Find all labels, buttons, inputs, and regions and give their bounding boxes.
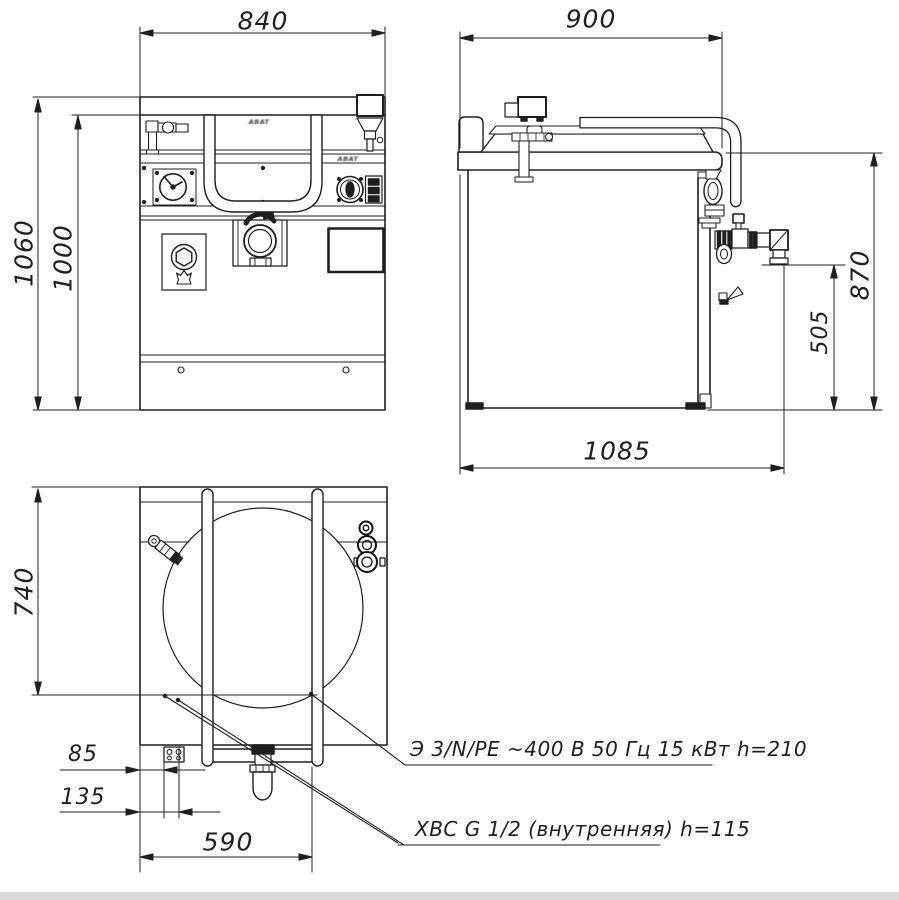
dim-label-740: 740 <box>12 567 37 618</box>
front-safety-valve <box>357 95 383 151</box>
dim-label-505: 505 <box>810 310 832 355</box>
side-left-tab <box>459 117 483 152</box>
dim-label-900: 900 <box>566 7 617 32</box>
front-indicator-lights <box>366 176 383 203</box>
front-electrical-box <box>329 229 384 273</box>
dim-label-590: 590 <box>203 830 254 855</box>
top-drain-valve <box>250 745 275 800</box>
technical-drawing-canvas: 840 900 1060 1000 870 505 1085 740 85 13… <box>0 0 899 900</box>
front-view-drawing <box>140 95 385 410</box>
top-handle-bar-left <box>202 489 213 766</box>
front-water-tap <box>146 121 188 154</box>
note-electrical-connection: Э 3/N/PE ~400 В 50 Гц 15 кВт h=210 <box>410 738 807 760</box>
dim-label-1085: 1085 <box>583 439 651 464</box>
front-service-panel <box>162 234 206 290</box>
brand-logo-lid: ABAT <box>249 118 270 125</box>
side-foot-right <box>686 403 705 409</box>
drawing-geometry <box>0 0 899 900</box>
dim-label-870: 870 <box>848 250 873 301</box>
side-drain-cap <box>704 178 722 205</box>
front-foot-screw-right <box>343 367 349 373</box>
brand-logo-rim: ABAT <box>338 155 359 162</box>
page-edge-strip <box>0 892 899 900</box>
dim-label-1060: 1060 <box>12 219 37 287</box>
top-handle-bar-right <box>312 489 323 766</box>
dim-label-1000: 1000 <box>51 224 76 292</box>
front-foot-screw-left <box>178 367 184 373</box>
side-table-top <box>458 152 722 170</box>
front-timer-dial <box>153 169 196 205</box>
dim-label-840: 840 <box>238 9 289 34</box>
front-power-knob <box>337 177 363 203</box>
dim-label-85: 85 <box>68 744 98 766</box>
note-cold-water-connection: ХВС G 1/2 (внутренняя) h=115 <box>415 818 750 840</box>
top-view-drawing <box>140 487 387 800</box>
side-drain-valve-assembly <box>715 214 788 264</box>
side-safety-valve <box>505 97 546 121</box>
side-foot-left <box>466 403 483 409</box>
side-wing-fitting <box>719 287 743 304</box>
side-view-drawing <box>458 97 788 409</box>
dim-label-135: 135 <box>61 787 106 809</box>
front-drain-valve <box>233 210 287 266</box>
top-water-inlet <box>164 747 184 762</box>
